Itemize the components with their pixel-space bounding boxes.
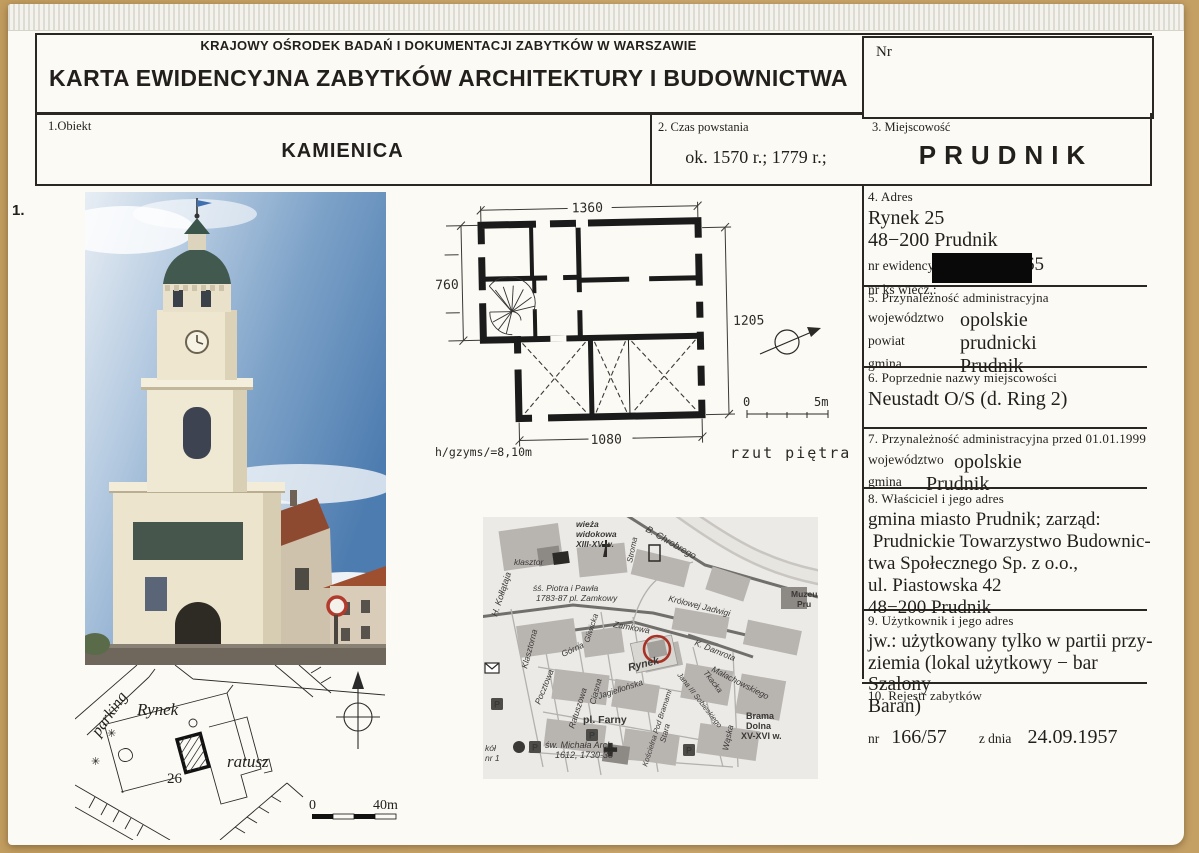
register-nr-label: nr [868,731,879,747]
field-label: 7. Przynależność administracyjna przed 0… [868,431,1150,447]
header: KRAJOWY OŚRODEK BADAŃ I DOKUMENTACJI ZAB… [35,38,862,92]
org-name: KRAJOWY OŚRODEK BADAŃ I DOKUMENTACJI ZAB… [35,38,862,53]
rule [35,33,1152,35]
map-label: św. Michała Arch. [545,740,615,750]
site-label-rynek: Rynek [136,700,179,719]
site-plan: ✳ ✳ parking Rynek 26 ratusz 0 40m [75,665,405,840]
field-label: 4. Adres [868,189,1146,205]
map-label: XIII-XV w. [575,539,614,549]
floor-plan: 1360 760 1205 1080 0 5m h/gzyms/=8,10m r… [430,192,860,470]
field-label: 10. Rejestr zabytków [868,688,1150,704]
map-label: nr 1 [485,753,500,763]
page-title: KARTA EWIDENCYJNA ZABYTKÓW ARCHITEKTURY … [35,65,862,92]
tower-photo [85,192,386,665]
dim-bottom: 1080 [590,432,622,448]
dim-top: 1360 [572,201,604,217]
site-scale-zero: 0 [309,798,316,813]
field-rejestr: 10. Rejestr zabytków nr 166/57 z dnia 24… [868,688,1150,749]
admin-key: województwo [868,452,944,467]
admin-key: województwo [868,310,944,325]
plan-compass-icon [760,330,814,354]
owner-line: Prudnickie Towarzystwo Budownic- [868,531,1150,553]
map-label: pl. Farny [583,714,627,726]
place-label: 3. Miejscowość [872,120,950,135]
map-label: klasztor [514,557,544,567]
map-label: Brama [746,711,775,721]
plan-height-note: h/gzyms/=8,10m [435,445,532,459]
register-date-value: 24.09.1957 [1027,726,1117,749]
site-label-number: 26 [167,771,183,787]
dim-left: 760 [435,278,459,293]
map-label: Pru [797,599,811,609]
field-przynaleznosc: 5. Przynależność administracyjna wojewód… [868,290,1146,373]
owner-line: gmina miasto Prudnik; zarząd: [868,509,1150,531]
nr-label: Nr [876,44,892,61]
map-label: kół [485,743,497,753]
time-label: 2. Czas powstania [658,120,749,135]
rule [35,112,864,115]
object-value: KAMIENICA [35,140,650,163]
time-value: ok. 1570 r.; 1779 r.; [652,147,860,168]
map-label: XV-XVI w. [741,731,782,741]
svg-text:P: P [686,746,692,756]
site-compass-arrow [352,671,364,689]
site-tree-icon: ✳ [91,756,100,768]
register-date-label: z dnia [979,731,1012,747]
plan-caption: rzut piętra [730,444,851,462]
admin-value: prudnicki [960,332,1037,354]
city-map: P P P P i H. Kołłątaja klasztor śś. Piot… [483,517,818,779]
rule [862,185,864,679]
plan-scale-zero: 0 [743,395,750,409]
svg-text:P: P [532,743,538,753]
admin-key: gmina [868,356,902,371]
field-label: 9. Użytkownik i jego adres [868,613,1153,629]
field-label: 8. Właściciel i jego adres [868,491,1150,507]
nr-box [862,36,1154,119]
site-label-ratusz: ratusz [227,752,269,771]
object-label: 1.Obiekt [48,119,91,134]
owner-line: twa Społecznego Sp. z o.o., [868,553,1150,575]
dim-right: 1205 [733,313,765,329]
svg-text:P: P [494,700,500,710]
map-label: 1783-87 pl. Zamkowy [536,593,618,603]
place-value: PRUDNIK [864,140,1148,171]
field-label: 6. Poprzednie nazwy miejscowości [868,370,1146,386]
field-przynaleznosc-1999: 7. Przynależność administracyjna przed 0… [868,431,1150,491]
admin-value: opolskie [960,309,1028,331]
field-poprzednie-nazwy: 6. Poprzednie nazwy miejscowości Neustad… [868,370,1146,410]
field-label: 5. Przynależność administracyjna [868,290,1146,306]
site-scale-max: 40m [373,798,398,813]
owner-line: ul. Piastowska 42 [868,575,1150,597]
map-label: Muzeu [791,589,817,599]
rule [35,184,1150,186]
map-label: 1612, 1730-38 [555,750,613,760]
site-compass-icon [336,687,380,749]
margin-number: 1. [12,202,25,219]
svg-text:P: P [589,731,595,741]
map-label: widokowa [576,529,617,539]
map-label: wieża [576,519,599,529]
rule [862,427,1147,429]
rule [1150,113,1152,186]
admin-key: powiat [868,333,905,348]
map-label: śś. Piotra i Pawła [533,583,598,593]
envelope-icon [485,663,499,673]
map-label: Dolna [746,721,772,731]
binding-strip [8,4,1184,31]
redaction-box [932,253,1032,283]
address-line: 48−200 Prudnik [868,229,1146,251]
scanned-record-card: KRAJOWY OŚRODEK BADAŃ I DOKUMENTACJI ZAB… [0,0,1199,853]
register-nr-value: 166/57 [891,726,947,749]
user-line: jw.: użytkowany tylko w partii przy- [868,631,1153,653]
plan-scale-max: 5m [814,395,828,409]
plan-compass-arrow [807,327,821,337]
address-line: Rynek 25 [868,207,1146,229]
admin-key: gmina [868,474,902,489]
admin-value: opolskie [954,451,1022,473]
previous-name: Neustadt O/S (d. Ring 2) [868,388,1146,410]
field-wlasciciel: 8. Właściciel i jego adres gmina miasto … [868,491,1150,619]
